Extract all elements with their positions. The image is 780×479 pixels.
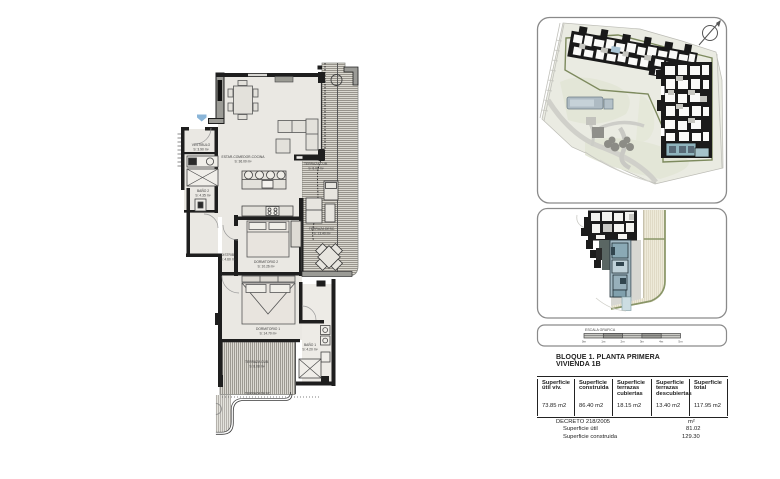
svg-text:BAÑO 1: BAÑO 1 bbox=[304, 342, 316, 347]
svg-text:S: 4.20 m²: S: 4.20 m² bbox=[302, 348, 318, 352]
svg-text:TERRAZA CUB.: TERRAZA CUB. bbox=[304, 162, 328, 166]
svg-text:ESTAR-COMEDOR-COCINA: ESTAR-COMEDOR-COCINA bbox=[222, 155, 266, 159]
svg-text:VESTIBULO: VESTIBULO bbox=[192, 143, 211, 147]
svg-text:S: 14.70 m²: S: 14.70 m² bbox=[259, 332, 277, 336]
svg-text:S: 10.26 m²: S: 10.26 m² bbox=[257, 265, 275, 269]
svg-text:BAÑO 2: BAÑO 2 bbox=[197, 188, 209, 193]
svg-text:3m: 3m bbox=[640, 340, 645, 344]
svg-text:DORMITORIO 1: DORMITORIO 1 bbox=[256, 327, 280, 331]
svg-text:5m: 5m bbox=[678, 340, 683, 344]
svg-text:ESCALA GRAFICA: ESCALA GRAFICA bbox=[585, 328, 616, 332]
svg-text:S: 13.40 m²: S: 13.40 m² bbox=[313, 232, 331, 236]
svg-text:TERRAZA DESC.: TERRAZA DESC. bbox=[245, 392, 271, 396]
svg-text:2m: 2m bbox=[621, 340, 626, 344]
svg-text:TERRAZA CUB.: TERRAZA CUB. bbox=[245, 360, 269, 364]
svg-text:S: 4.35 m²: S: 4.35 m² bbox=[195, 194, 211, 198]
svg-text:S: 8.08 m²: S: 8.08 m² bbox=[249, 365, 265, 369]
svg-text:4m: 4m bbox=[659, 340, 664, 344]
svg-text:S: 3.90 m²: S: 3.90 m² bbox=[193, 148, 209, 152]
svg-text:S: 8.08 m²: S: 8.08 m² bbox=[308, 167, 324, 171]
svg-text:S: 36.00 m²: S: 36.00 m² bbox=[234, 160, 252, 164]
svg-text:0m: 0m bbox=[582, 340, 587, 344]
svg-text:DISTRIB.: DISTRIB. bbox=[221, 253, 235, 257]
svg-text:S: 4.60 m²: S: 4.60 m² bbox=[220, 258, 236, 262]
svg-text:DORMITORIO 2: DORMITORIO 2 bbox=[254, 260, 278, 264]
svg-text:1m: 1m bbox=[601, 340, 606, 344]
svg-text:TERRAZA DESC.: TERRAZA DESC. bbox=[309, 227, 335, 231]
